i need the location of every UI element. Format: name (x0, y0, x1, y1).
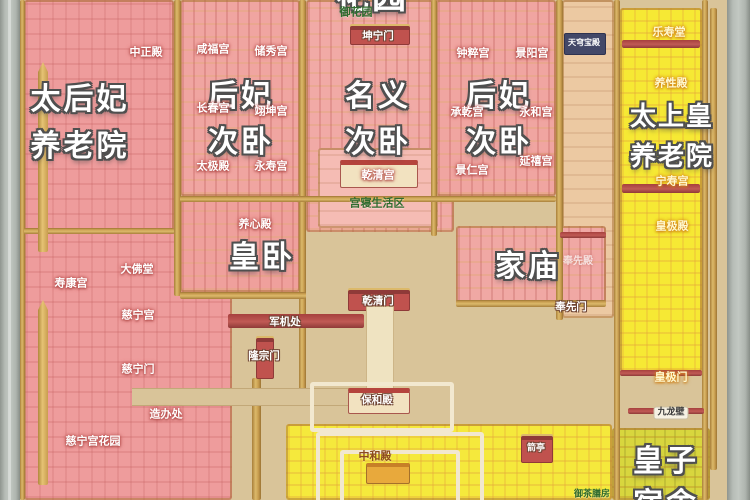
map-label: 御花园 (340, 7, 373, 18)
forbidden-city-map: 太后妃养老院后妃次卧名义次卧后妃次卧太上皇养老院皇卧家庙花园皇子宿舍咸福宫储秀宫… (0, 0, 750, 500)
map-label: 养性殿 (655, 78, 688, 89)
map-label: 军机处 (269, 317, 301, 328)
map-label: 长春宫 (197, 103, 230, 114)
map-label: 保和殿 (361, 395, 393, 406)
map-label: 钟粹宫 (457, 48, 490, 59)
map-label: 慈宁宫 (122, 310, 155, 321)
map-label: 天穹宝殿 (568, 39, 600, 47)
map-label: 隆宗门 (248, 351, 280, 362)
map-label: 永和宫 (520, 107, 553, 118)
map-label: 太后妃 (31, 85, 130, 115)
map-label: 养老院 (31, 132, 130, 162)
map-label: 皇极门 (655, 372, 688, 383)
map-label: 中和殿 (359, 451, 392, 462)
map-label: 造办处 (150, 409, 183, 420)
map-label: 养老院 (630, 144, 714, 170)
map-label: 大佛堂 (121, 264, 154, 275)
map-label: 箭亭 (527, 445, 545, 454)
map-label: 中正殿 (130, 47, 163, 58)
map-label: 延禧宫 (520, 156, 553, 167)
map-label: 咸福宫 (197, 44, 230, 55)
map-label: 慈宁门 (122, 364, 155, 375)
map-label: 宿舍 (633, 490, 699, 500)
map-label: 太上皇 (630, 104, 714, 130)
map-label: 寿康宫 (55, 278, 88, 289)
map-label: 翊坤宫 (255, 106, 288, 117)
map-label: 皇极殿 (656, 221, 689, 232)
map-label: 奉先门 (555, 302, 587, 313)
map-label: 慈宁宫花园 (66, 436, 121, 447)
map-label: 皇子 (633, 447, 699, 477)
map-label: 太极殿 (197, 161, 230, 172)
map-label: 养心殿 (239, 219, 272, 230)
map-label: 奉先殿 (563, 257, 593, 267)
map-label: 储秀宫 (255, 46, 288, 57)
map-label: 宫寝生活区 (350, 198, 405, 209)
map-label: 乐寿堂 (653, 27, 686, 38)
map-label: 次卧 (208, 128, 274, 158)
map-label: 永寿宫 (255, 161, 288, 172)
map-label: 次卧 (345, 128, 411, 158)
map-label: 九龙壁 (653, 407, 688, 420)
map-label: 次卧 (466, 128, 532, 158)
map-label: 乾清门 (362, 296, 394, 307)
map-label: 家庙 (495, 252, 561, 282)
map-label: 景阳宫 (516, 48, 549, 59)
map-label: 景仁宫 (456, 165, 489, 176)
map-label: 承乾宫 (451, 107, 484, 118)
map-label: 宁寿宫 (656, 176, 689, 187)
map-label: 名义 (345, 82, 411, 112)
map-label: 乾清宫 (362, 170, 395, 181)
map-label: 御茶膳房 (574, 491, 610, 500)
map-labels-layer: 太后妃养老院后妃次卧名义次卧后妃次卧太上皇养老院皇卧家庙花园皇子宿舍咸福宫储秀宫… (0, 0, 750, 500)
map-label: 皇卧 (229, 243, 295, 273)
map-label: 坤宁门 (362, 31, 394, 42)
